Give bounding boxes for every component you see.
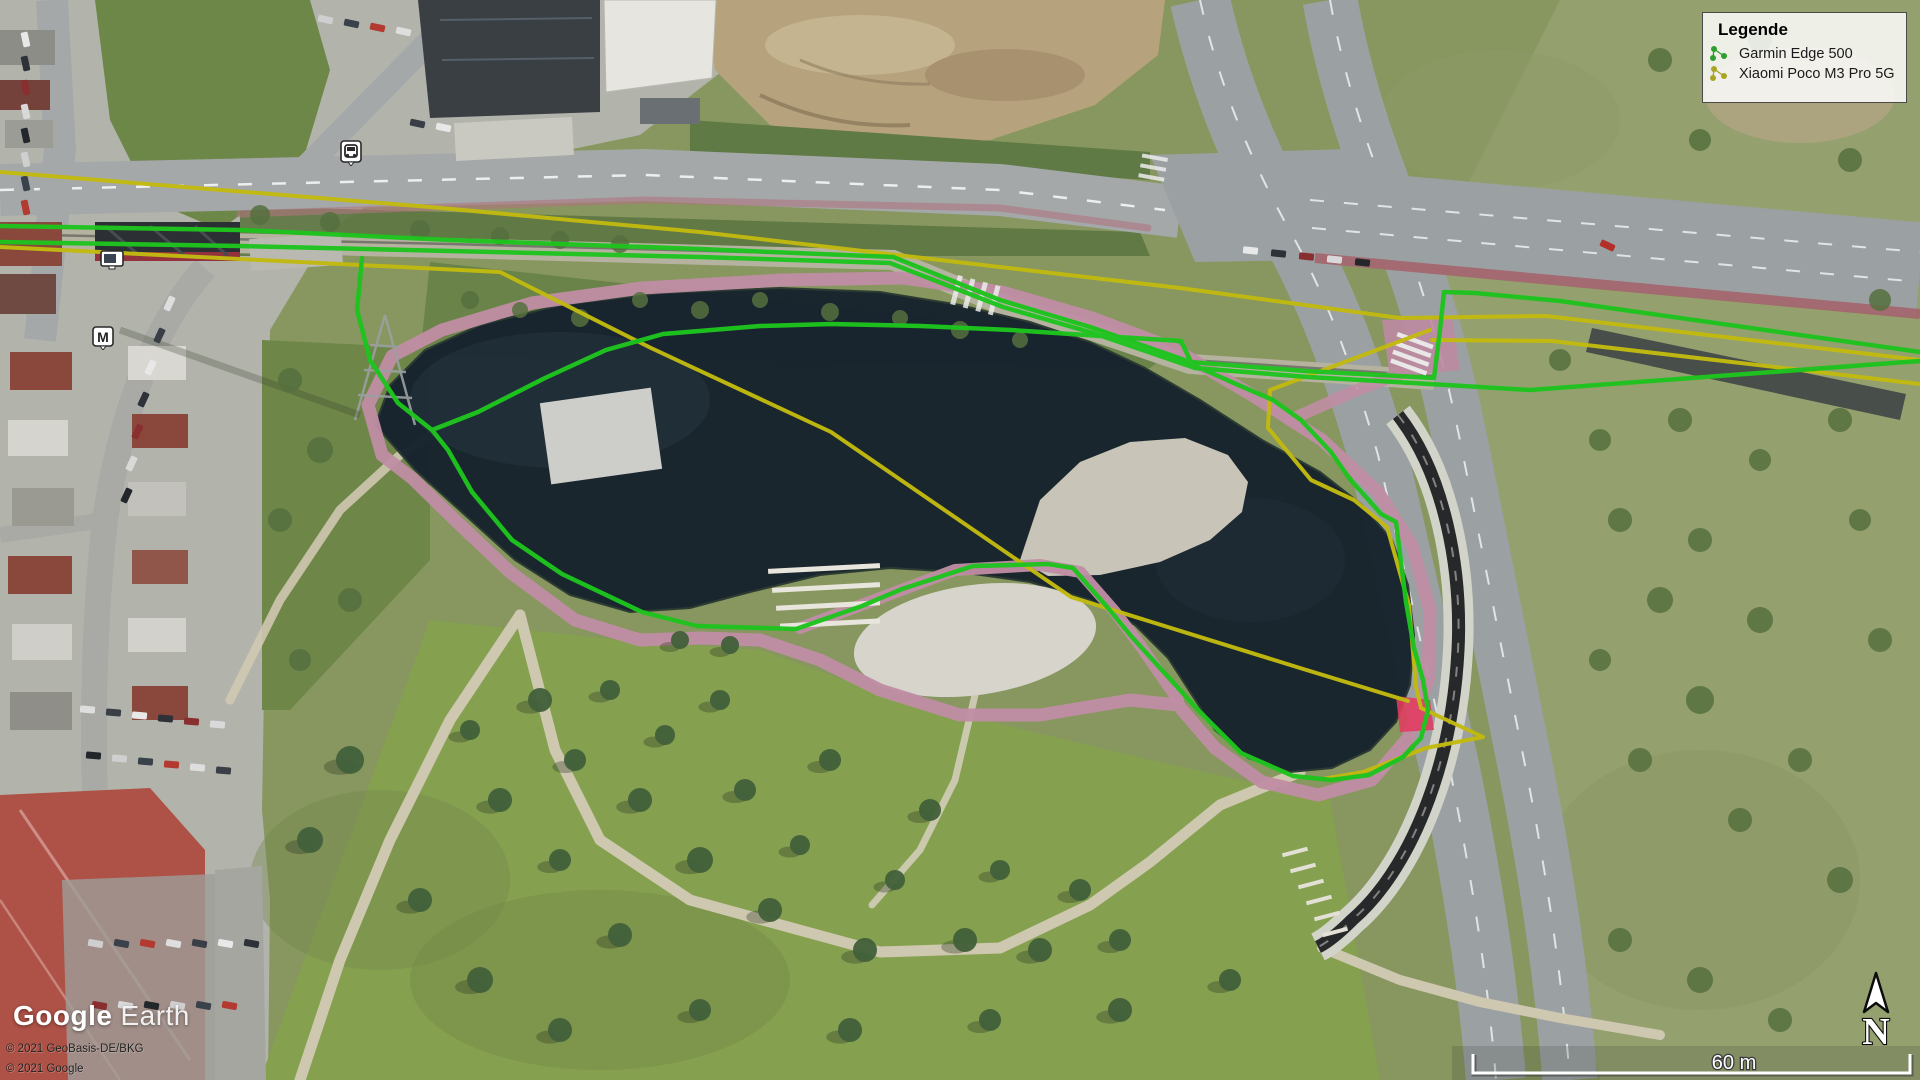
logo-earth: Earth [120, 1000, 189, 1031]
north-arrow: N [1852, 970, 1900, 1050]
track-dots-icon-yellow [1709, 65, 1729, 82]
legend-item-label: Garmin Edge 500 [1739, 46, 1853, 62]
poi-metro-station-icon[interactable]: M [92, 326, 114, 355]
logo-google: Google [13, 1000, 112, 1031]
google-earth-window: Legende Garmin Edge 500 Xiaomi Poco M3 P… [0, 0, 1920, 1080]
google-earth-logo: GoogleEarth [13, 1000, 190, 1032]
poi-parking-car-icon[interactable] [340, 140, 362, 171]
svg-text:M: M [97, 329, 109, 345]
satellite-imagery[interactable] [0, 0, 1920, 1080]
poi-photo-viewpoint-icon[interactable] [100, 250, 124, 277]
legend-panel: Legende Garmin Edge 500 Xiaomi Poco M3 P… [1702, 12, 1907, 103]
attribution-line-google: © 2021 Google [6, 1059, 144, 1079]
legend-item-label: Xiaomi Poco M3 Pro 5G [1739, 66, 1895, 82]
map-attribution: © 2021 GeoBasis-DE/BKG © 2021 Google [6, 1039, 144, 1079]
legend-item-garmin: Garmin Edge 500 [1703, 44, 1906, 64]
scale-bar: 60 m [1452, 1044, 1920, 1080]
legend-item-xiaomi: Xiaomi Poco M3 Pro 5G [1703, 64, 1906, 84]
legend-title: Legende [1703, 13, 1906, 44]
track-dots-icon-green [1709, 45, 1729, 62]
attribution-line-geobasis: © 2021 GeoBasis-DE/BKG [6, 1039, 144, 1059]
scale-bar-label: 60 m [1712, 1052, 1756, 1074]
north-arrow-icon [1864, 973, 1888, 1012]
